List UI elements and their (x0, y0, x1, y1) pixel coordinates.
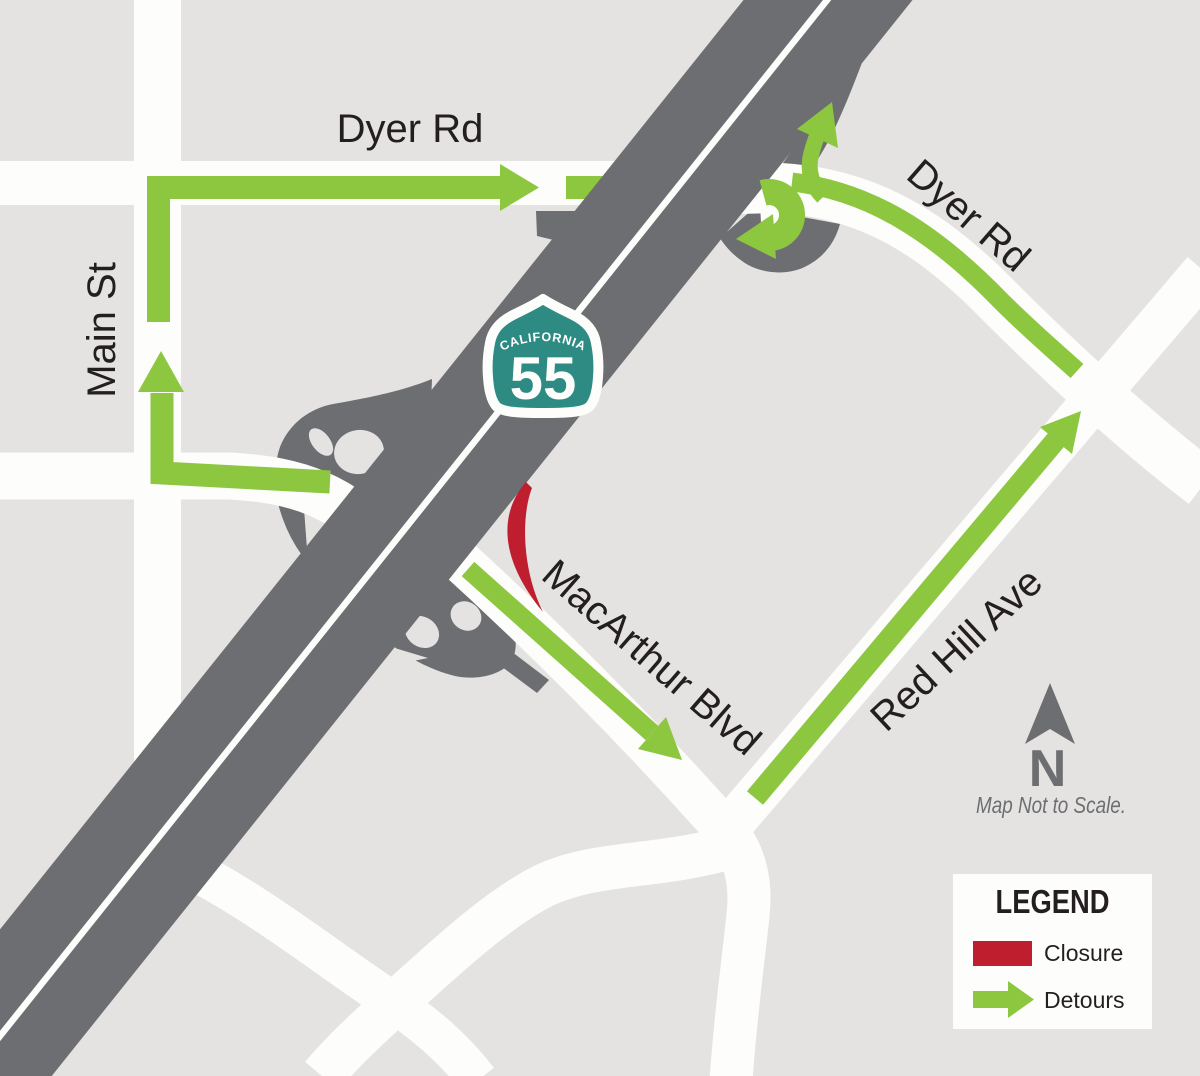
svg-text:Map Not to Scale.: Map Not to Scale. (976, 792, 1126, 818)
svg-text:Dyer Rd: Dyer Rd (337, 107, 484, 151)
svg-text:LEGEND: LEGEND (996, 883, 1110, 920)
svg-text:Detours: Detours (1044, 987, 1125, 1013)
svg-text:55: 55 (510, 345, 577, 412)
svg-text:Main St: Main St (80, 262, 124, 398)
svg-text:N: N (1029, 740, 1067, 798)
svg-text:Closure: Closure (1044, 940, 1123, 966)
